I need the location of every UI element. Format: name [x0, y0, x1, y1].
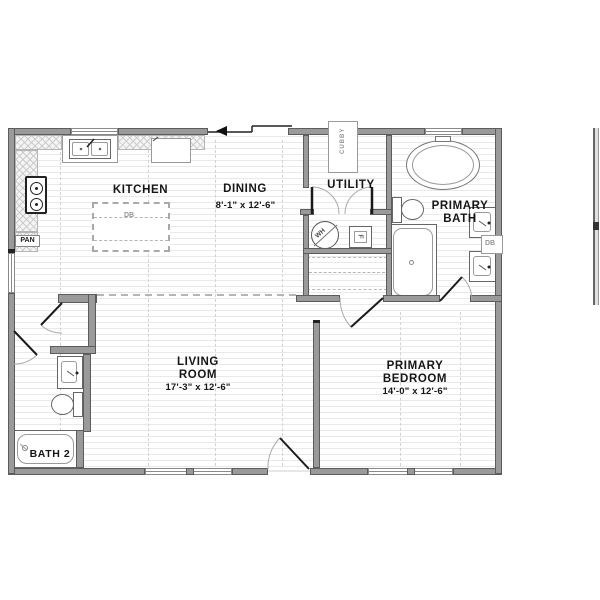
primary-bedroom-label: PRIMARY BEDROOM 14'-0" x 12'-6"	[362, 360, 468, 398]
bath2-toilet-tank	[73, 392, 83, 417]
pantry-label: PAN	[15, 235, 40, 247]
hall-closet-wall	[88, 294, 96, 354]
exterior-wall-bottom	[232, 468, 268, 475]
closet-rod	[309, 272, 385, 273]
living-room-label: LIVING ROOM 17'-3" x 12'-6"	[146, 356, 250, 394]
floor-joint	[282, 140, 283, 466]
window-mullion	[186, 468, 194, 475]
exterior-wall-bottom	[310, 468, 368, 475]
bath-wall-west	[386, 135, 392, 296]
bath2-toilet-bowl	[51, 394, 74, 415]
closet-shelving	[307, 257, 387, 290]
wall-cap	[313, 320, 320, 323]
kitchen-label: KITCHEN	[103, 184, 178, 197]
vanity-basin	[473, 256, 491, 276]
wall-cap	[8, 249, 15, 253]
utility-label: UTILITY	[322, 179, 380, 192]
bathtub-primary-inner	[412, 145, 474, 185]
bedroom-line1: PRIMARY	[362, 360, 468, 373]
window-hall	[8, 253, 15, 293]
kitchen-island	[92, 202, 170, 252]
hall-south-wall	[296, 295, 340, 302]
exterior-wall-top	[118, 128, 208, 135]
dining-label: DINING	[212, 183, 278, 196]
island-db-label: DB	[124, 212, 134, 219]
sink-basin	[72, 142, 89, 156]
stove-burner	[30, 182, 43, 195]
living-line1: LIVING	[146, 356, 250, 369]
hall-south-wall	[383, 295, 440, 302]
tub-faucet-deck	[435, 136, 451, 142]
bath2-north-wall	[50, 346, 96, 354]
utility-door-jamb	[370, 209, 392, 215]
exterior-wall-top	[288, 128, 330, 135]
tub-alcove-wall	[76, 430, 84, 468]
counter	[15, 135, 62, 150]
window-primary-bath	[425, 128, 462, 135]
shower-drain	[409, 260, 414, 265]
exterior-wall-left	[8, 128, 15, 253]
exterior-wall-left	[8, 293, 15, 474]
exterior-wall-top	[8, 128, 71, 135]
vanity-db-label: DB	[485, 240, 495, 247]
exterior-wall-bottom	[8, 468, 145, 475]
utility-wall-west-upper	[303, 135, 309, 188]
dining-dims: 8'-1" x 12'-6"	[198, 200, 293, 212]
hall-south-wall	[470, 295, 502, 302]
island-overhang-line	[94, 240, 168, 241]
cubby-label: CUBBY	[340, 132, 346, 154]
sink-basin	[91, 142, 108, 156]
living-line2: ROOM	[146, 369, 250, 382]
window-mullion	[407, 468, 415, 475]
furnace-label: F	[357, 234, 364, 238]
bath2-label: BATH 2	[24, 448, 76, 461]
window-kitchen	[71, 128, 118, 135]
adjacent-structure-mark	[593, 222, 599, 230]
bath2-east-wall	[83, 354, 91, 432]
adjacent-structure-edge	[593, 128, 599, 305]
bath2-basin	[61, 361, 77, 383]
living-dims: 17'-3" x 12'-6"	[146, 382, 250, 394]
refrigerator	[151, 138, 191, 163]
primary-bath-label: PRIMARY BATH	[424, 200, 496, 226]
dining-hall-wall	[303, 215, 309, 296]
floor-joint	[60, 152, 61, 466]
living-bedroom-wall	[313, 322, 320, 468]
exterior-wall-top	[356, 128, 425, 135]
stove-burner	[30, 198, 43, 211]
primary-bath-line1: PRIMARY	[424, 200, 496, 213]
laundry-closet-divider	[303, 248, 392, 254]
primary-bath-line2: BATH	[424, 213, 496, 226]
bedroom-dims: 14'-0" x 12'-6"	[362, 386, 468, 398]
toilet-bowl	[401, 199, 424, 220]
bedroom-line2: BEDROOM	[362, 373, 468, 386]
floor-plan: PAN DB CUBBY WH F DB KITCHEN DINING 8'-1…	[0, 0, 600, 600]
range-stove	[25, 176, 47, 214]
